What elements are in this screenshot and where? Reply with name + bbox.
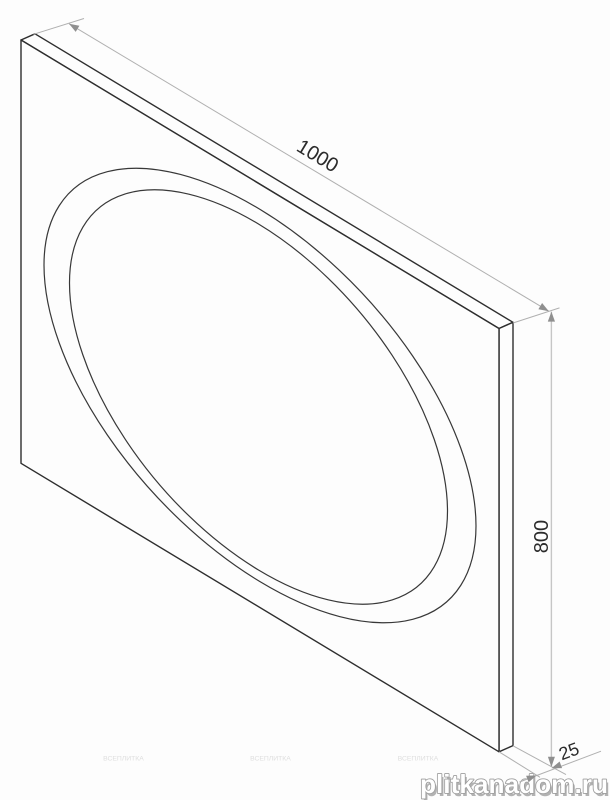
svg-text:ВСЕПЛИТКА: ВСЕПЛИТКА bbox=[103, 756, 144, 763]
svg-text:ВСЕПЛИТКА: ВСЕПЛИТКА bbox=[250, 756, 291, 763]
svg-text:1000: 1000 bbox=[293, 135, 342, 177]
svg-text:plitkanadom.ru: plitkanadom.ru bbox=[420, 769, 608, 799]
svg-text:ВСЕПЛИТКА: ВСЕПЛИТКА bbox=[398, 756, 439, 763]
svg-text:800: 800 bbox=[531, 520, 553, 553]
